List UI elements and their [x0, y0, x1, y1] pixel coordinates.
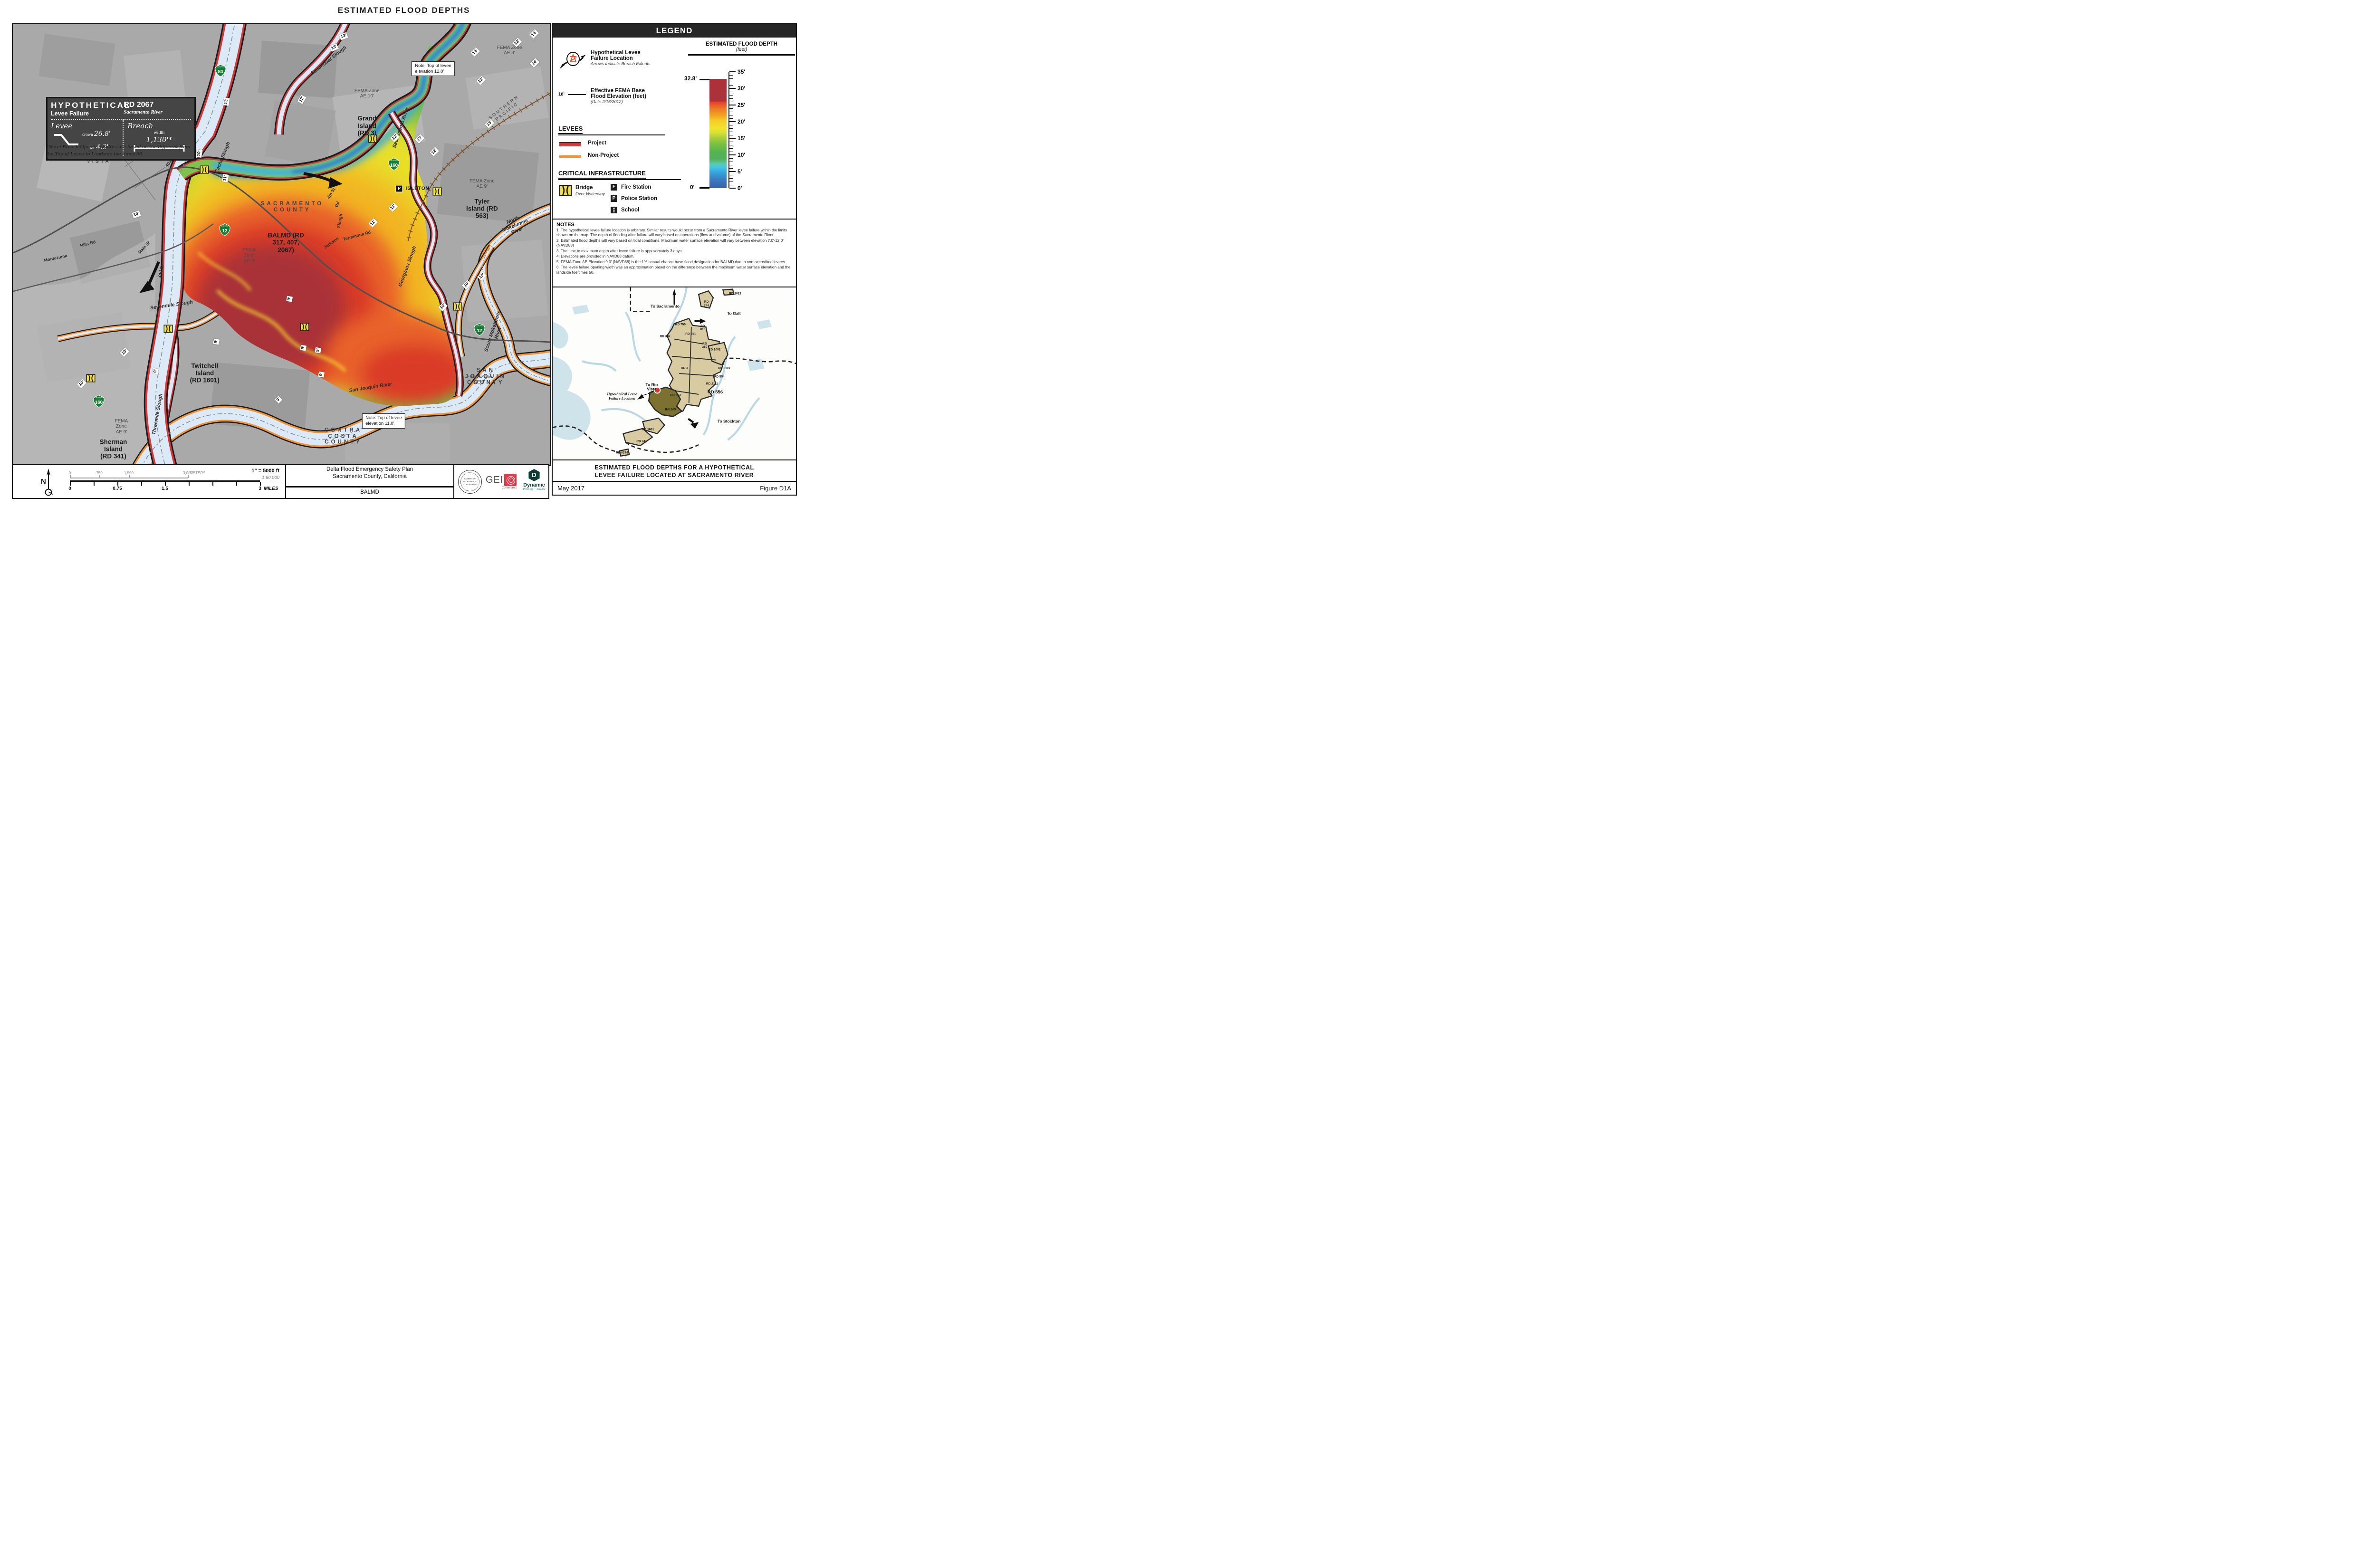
legend-box: LEGEND Hypothetical Levee Failure Locati…: [552, 23, 797, 220]
svg-text:CALIFORNIA: CALIFORNIA: [476, 325, 484, 327]
notes-box: NOTES 1. The hypothetical levee failure …: [552, 219, 797, 288]
map-label: Sevenmile Slough: [150, 300, 193, 311]
elevation-tag: 10': [77, 379, 86, 388]
miles-tick: [94, 482, 95, 486]
map-label: South Mokelumne River: [482, 304, 509, 360]
colorbar-tick-label: 15': [738, 135, 745, 142]
document-title-box: Delta Flood Emergency Safety Plan Sacram…: [285, 464, 455, 499]
callout-title: HYPOTHETICAL: [51, 101, 124, 110]
figure-number: Figure D1A: [760, 485, 791, 492]
police-station-icon: P: [396, 185, 403, 192]
note-line: 2. Estimated flood depths will vary base…: [556, 239, 792, 249]
highway-shield-84: CALIFORNIA84: [214, 64, 227, 77]
inset-label: RD 554: [714, 375, 725, 379]
date-figure-row: May 2017 Figure D1A: [552, 481, 797, 496]
elevation-tag: 13': [476, 76, 486, 85]
inset-label: RD 813: [700, 325, 705, 331]
inset-label: To Rio Vista: [645, 383, 658, 392]
inset-label: RD 2022: [729, 292, 741, 295]
bridge-icon: [86, 374, 95, 382]
miles-tick: [189, 482, 190, 486]
colorbar-tick: [729, 71, 736, 72]
elevation-tag: 9': [287, 296, 293, 302]
figure-page: ESTIMATED FLOOD DEPTHS: [0, 0, 808, 523]
colorbar-tick: [729, 88, 736, 89]
legend-bridge-icon: [559, 185, 572, 196]
svg-text:160: 160: [95, 400, 103, 405]
map-label: FEMA Zone AE 10': [354, 88, 380, 99]
inset-label: RD 369: [702, 342, 708, 349]
bridge-icon: [300, 323, 309, 331]
colorbar-tick: [729, 154, 736, 155]
miles-tick-label: 3: [259, 486, 261, 491]
map-label: CONTRA COSTA COUNTY: [325, 427, 362, 446]
infra-title: CRITICAL INFRASTRUCTURE: [558, 170, 646, 179]
elevation-tag: 13': [485, 119, 494, 128]
elevation-tag: 11': [222, 174, 229, 182]
meters-tick: [99, 475, 100, 478]
svg-text:CALIFORNIA: CALIFORNIA: [95, 397, 103, 399]
elevation-tag: 10': [132, 210, 141, 219]
inset-label: RD 551: [685, 333, 696, 336]
zero-depth-label: 0': [690, 184, 695, 191]
note-line: 4. Elevations are provided in NAVD88 dat…: [556, 254, 792, 259]
gei-logo: GEI Consultants: [486, 474, 517, 489]
school-icon: [611, 207, 617, 213]
inset-label: RD 1002: [709, 348, 721, 352]
date: May 2017: [557, 485, 584, 492]
colorbar-tick-label: 5': [738, 168, 742, 175]
map-label: ISLETON: [406, 186, 430, 191]
elevation-tag: 12': [390, 133, 400, 143]
elevation-tag: 9': [152, 368, 158, 374]
gei-logo-mark: [504, 474, 517, 486]
inset-label: RD 744: [704, 300, 709, 307]
dynamic-logo: D Dynamic Planning + Science: [520, 469, 548, 491]
police-station-icon: P: [611, 195, 617, 202]
colorbar-tick: [729, 188, 736, 189]
miles-tick: [141, 482, 142, 486]
meters-tick: [129, 475, 130, 478]
colorbar-tick: [729, 138, 736, 139]
note-line: 1. The hypothetical levee failure locati…: [556, 228, 792, 238]
miles-tick-label: 0: [68, 486, 71, 491]
inset-label: BALMD: [665, 408, 676, 411]
callout-footnote: *Note: Breach Opening Widths are based o…: [46, 144, 197, 158]
svg-text:CALIFORNIA: CALIFORNIA: [390, 160, 398, 162]
svg-text:CALIFORNIA: CALIFORNIA: [220, 225, 229, 227]
inset-label: To Stockton: [718, 420, 740, 424]
elevation-tag: 13': [330, 43, 339, 51]
max-depth-label: 32.8': [684, 75, 697, 82]
meters-tick: [188, 475, 189, 478]
elevation-tag: 14': [530, 58, 539, 67]
flood-depth-scale: ESTIMATED FLOOD DEPTH (feet) 0'5'10'15'2…: [688, 41, 795, 56]
scale-bar-box: N 07501,5003,000 00.751.53 METERS MILES …: [12, 464, 286, 499]
inset-label: RD 0274: [616, 451, 628, 454]
elevation-tag: 12': [297, 95, 306, 104]
map-label: SACRAMENTO COUNTY: [261, 201, 324, 213]
bridge-icon: [433, 187, 442, 195]
map-label: North Mokelumne River: [496, 211, 535, 240]
svg-text:160: 160: [390, 163, 398, 168]
map-label: Jackson: [323, 236, 339, 250]
elevation-tag: 9': [275, 396, 282, 403]
map-label: Steamboat Slough: [310, 45, 348, 76]
map-label: FEMA Zone AE 9': [467, 374, 492, 385]
page-title: ESTIMATED FLOOD DEPTHS: [0, 6, 808, 15]
elevation-tag: 9': [300, 345, 306, 351]
map-label: Slough: [336, 213, 343, 229]
elevation-tag: 13': [415, 134, 424, 143]
elevation-tag: 13': [512, 38, 522, 47]
svg-text:12: 12: [477, 328, 482, 334]
inset-label: RD 563: [671, 394, 681, 397]
inset-label: RD 3: [681, 367, 688, 370]
map-label: Sherman Island (RD 341): [100, 438, 127, 459]
miles-tick: [236, 482, 237, 486]
highway-shield-160: CALIFORNIA160: [388, 158, 400, 171]
map-label: FEMA Zone AE 9': [115, 419, 128, 435]
map-label: Montezuma: [44, 253, 68, 263]
logos-box: COUNTY OF SACRAMENTO · CALIFORNIA GEI Co…: [453, 464, 549, 499]
miles-tick: [260, 482, 261, 486]
levee-note-box: Note: Top of levee elevation 12.0': [412, 61, 454, 76]
colorbar-tick-label: 30': [738, 85, 745, 92]
elevation-tag: 9': [318, 371, 324, 377]
meters-unit: METERS: [190, 471, 205, 475]
map-label: San Joaquin River: [349, 382, 393, 394]
inset-label: RD 349: [660, 335, 671, 338]
colorbar-tick-label: 20': [738, 118, 745, 125]
inset-label: RD 2111: [706, 382, 718, 385]
district-label: BALMD: [286, 489, 454, 495]
county-seal: COUNTY OF SACRAMENTO · CALIFORNIA: [458, 470, 482, 494]
levee-note-box: Note: Top of levee elevation 11.0': [362, 413, 405, 429]
callout-rd: RD 2067: [124, 101, 191, 109]
elevation-tag: 10': [196, 149, 202, 158]
legend-header: LEGEND: [553, 24, 796, 38]
bridge-icon: [200, 166, 209, 174]
legend-failure-icon: [558, 47, 588, 73]
legend-fema-tick: 18': [558, 92, 565, 97]
inset-label: RD 2110: [718, 367, 730, 370]
colorbar-tick-label: 10': [738, 152, 745, 158]
inset-label: RD 556: [708, 390, 723, 395]
elevation-tag: 9': [213, 339, 219, 345]
inset-label: RD 341: [636, 440, 647, 443]
map-label: Main St: [137, 240, 151, 255]
miles-tick-label: 1.5: [162, 486, 168, 491]
scale-ratio: 1" = 5000 ft: [251, 468, 279, 474]
inset-label: RD 755: [675, 323, 686, 326]
figure-title-block: ESTIMATED FLOOD DEPTHS FOR A HYPOTHETICA…: [552, 459, 797, 482]
right-panel: LEGEND Hypothetical Levee Failure Locati…: [552, 23, 797, 496]
colorbar-tick-label: 35': [738, 68, 745, 75]
map-label: FEMA Zone AE 9': [497, 45, 522, 56]
project-levee-swatch: [559, 142, 581, 146]
map-label: Cache Slough: [214, 142, 232, 174]
map-label: Terminous Rd: [343, 230, 371, 242]
nonproject-levee-swatch: [559, 155, 581, 158]
inset-label: RD 1601: [642, 428, 654, 431]
colorbar-tick: [729, 171, 736, 172]
map-label: Rd: [335, 201, 341, 208]
elevation-tag: 10': [438, 302, 448, 311]
elevation-tag: 10': [478, 271, 487, 281]
miles-tick: [70, 482, 71, 486]
elevation-tag: 14': [529, 29, 539, 39]
map-label: FEMA Zone AE 9': [469, 179, 495, 189]
bridge-icon: [453, 302, 462, 310]
highway-shield-160: CALIFORNIA160: [93, 395, 105, 408]
legend-fema-line: [568, 94, 586, 95]
colorbar-tick-label: 0': [738, 185, 742, 191]
colorbar-tick: [729, 105, 736, 105]
north-arrow: N: [40, 468, 57, 497]
fire-station-icon: F: [611, 184, 617, 191]
elevation-tag: 11': [368, 218, 377, 227]
notes-title: NOTES: [556, 222, 792, 228]
colorbar-tick: [729, 121, 736, 122]
highway-shield-12: CALIFORNIA12: [473, 323, 486, 336]
map-label: BALMD (RD 317, 407, 2067): [268, 232, 304, 253]
note-line: 5. FEMA Zone AE Elevation 9.0' (NAVD88) …: [556, 260, 792, 265]
elevation-tag: 11': [388, 202, 397, 211]
map-label: Tyler Island (RD 563): [466, 198, 498, 219]
elevation-tag: 10': [462, 280, 471, 290]
svg-text:CALIFORNIA: CALIFORNIA: [216, 66, 224, 68]
note-line: 3. The time to maximum depth after levee…: [556, 249, 792, 254]
map-label: Sacramento River: [392, 107, 410, 149]
svg-text:12: 12: [222, 229, 227, 234]
bridge-icon: [163, 325, 172, 333]
map-label: Threemile Slough: [152, 393, 164, 436]
miles-unit: MILES: [264, 486, 278, 491]
svg-text:N: N: [41, 478, 46, 486]
miles-tick: [117, 482, 118, 486]
colorbar-tick-label: 25': [738, 102, 745, 108]
inset-label: To Galt: [727, 311, 741, 316]
map-label: 2nd St: [157, 264, 165, 278]
note-line: 6. The levee failure opening width was a…: [556, 265, 792, 275]
map-label: Hills Rd: [80, 239, 96, 248]
elevation-tag: 12': [430, 147, 439, 156]
elevation-tag: 11': [223, 98, 230, 106]
inset-map: RD 2022RD 744To SacramentoTo GaltRD 755R…: [552, 287, 797, 460]
map-label: SAN JOAQUIN COUNTY: [465, 368, 507, 386]
map-label: Grand Island (RD 3): [357, 115, 376, 136]
map-label: FEMA Zone AE 9': [243, 248, 256, 264]
meters-tick: [70, 475, 71, 478]
miles-tick-label: 0.75: [113, 486, 122, 491]
map-label: 4th St: [326, 187, 336, 200]
main-map: SOLANO COUNTYRIO VISTASACRAMENTO COUNTYC…: [12, 23, 551, 466]
miles-tick: [165, 482, 166, 486]
map-label: Twitchell Island (RD 1601): [190, 362, 220, 383]
highway-shield-12: CALIFORNIA12: [219, 223, 231, 236]
bridge-icon: [368, 135, 377, 143]
inset-label: To Sacramento: [651, 304, 680, 308]
svg-text:84: 84: [218, 69, 223, 75]
elevation-tag: 9': [315, 347, 321, 353]
elevation-tag: 13': [339, 32, 348, 40]
elevation-tag: 10': [120, 348, 129, 357]
levees-title: LEVEES: [558, 125, 583, 134]
miles-tick: [212, 482, 213, 486]
map-label: Georgiana Slough: [398, 246, 418, 288]
elevation-tag: 14': [470, 47, 480, 57]
inset-label: Hypothetical Levee Failure Location: [607, 392, 637, 401]
